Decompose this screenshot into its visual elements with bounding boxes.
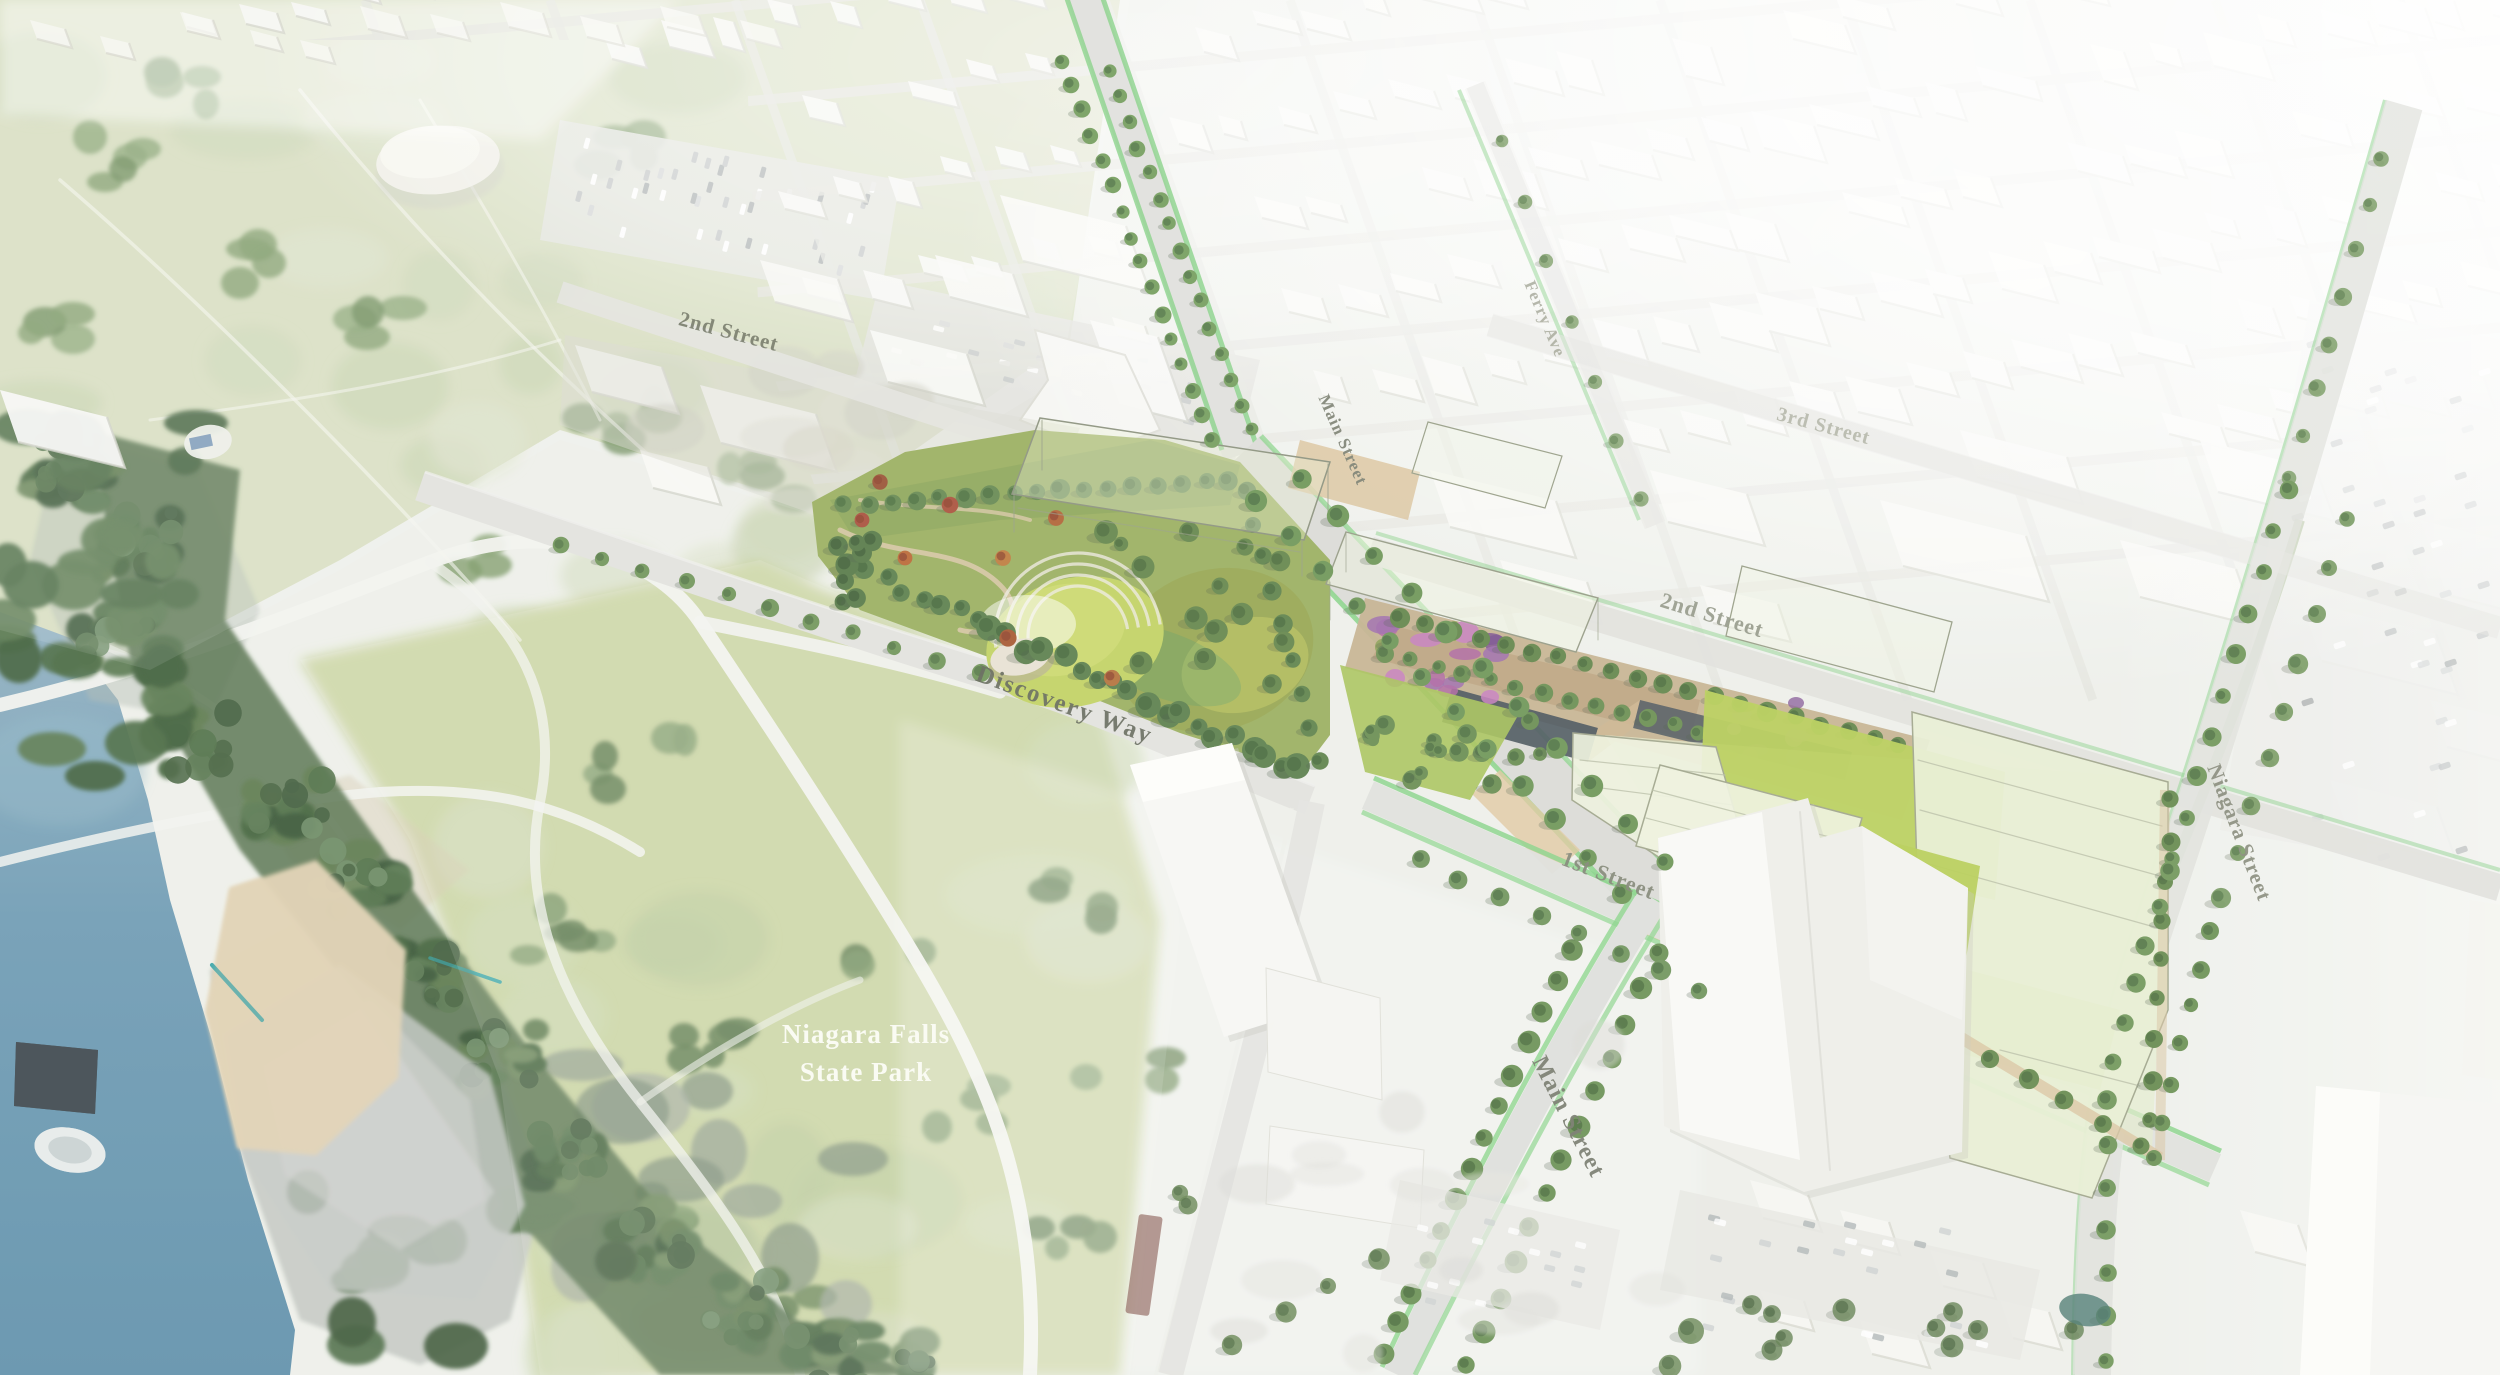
svg-text:Niagara Falls: Niagara Falls: [782, 1019, 950, 1049]
svg-text:State Park: State Park: [800, 1057, 932, 1087]
